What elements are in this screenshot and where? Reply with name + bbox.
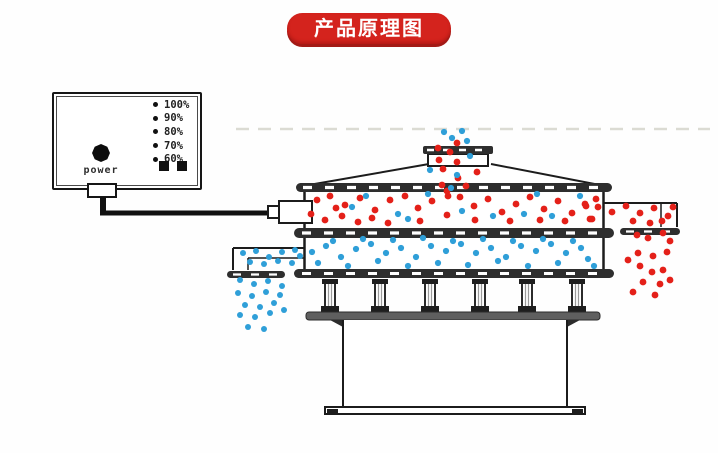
vibrating-sieve-diagram (0, 0, 718, 453)
spring (321, 279, 339, 312)
spring (421, 279, 439, 312)
spring (568, 279, 586, 312)
page: 产品原理图 power 100% 90% 80% 70% (0, 0, 718, 453)
upper-screen-deck (305, 192, 604, 228)
ultrasonic-connector (268, 201, 312, 223)
spring (371, 279, 389, 312)
middle-clamp-band (294, 228, 614, 238)
bottom-clamp-band (294, 269, 614, 278)
fine-outlet-blue (235, 247, 303, 332)
bottom-base-plate (325, 407, 585, 414)
power-cable (88, 184, 272, 213)
spring (471, 279, 489, 312)
suspension-springs (321, 279, 586, 312)
spring (518, 279, 536, 312)
base-body (343, 320, 567, 407)
